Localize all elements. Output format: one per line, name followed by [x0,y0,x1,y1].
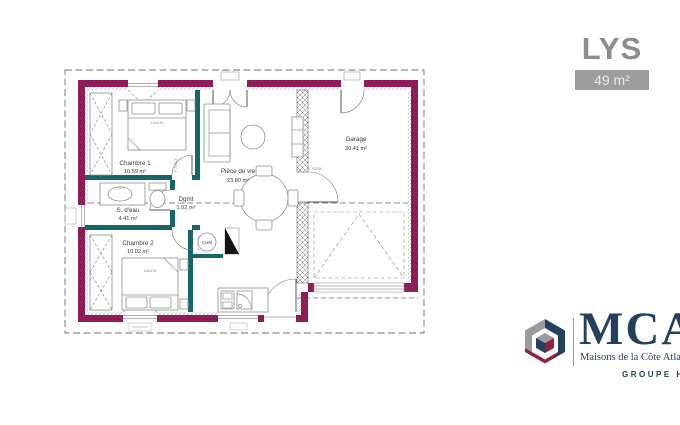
garage-access-door: P 75/204 [308,167,338,202]
label-chambre1-area: 10.59 m² [124,169,146,175]
garage-door-label: P 75/204 [308,167,322,171]
label-dgmt-area: 1.02 m² [177,205,196,211]
label-garage-area: 20.41 m² [345,146,367,152]
entry-door [213,72,247,107]
chambre1-door: P 70/204 [172,155,192,175]
kitchen-counter [218,288,268,312]
mca-cube-icon [521,315,569,367]
label-sdeau: S. d'eau [117,207,140,214]
logo-group: GROUPE HEXAOM [622,370,680,379]
model-title: LYS [575,33,649,65]
living-furniture [204,104,303,230]
chambre2-door: P 70/204 [172,230,201,250]
bathroom-window [65,205,85,227]
garage-door [314,212,404,292]
area-badge: 49 m² [575,70,649,90]
plan-header: LYS 49 m² [575,33,649,90]
label-piece-de-vie: Pièce de vie [221,168,256,175]
chambre1-door-label: P 70/204 [174,158,178,172]
page: { "header": { "title": "LYS", "area_badg… [0,0,680,425]
kitchen-window [218,316,258,331]
tech-closet: CUM [198,228,239,254]
builder-logo: MCA Maisons de la Côte Atlantique GROUPE… [516,310,680,400]
garage-side-door [341,72,364,113]
label-chambre1: Chambre 1 [119,160,151,167]
logo-divider [573,318,574,366]
label-chambre2: Chambre 2 [122,240,154,247]
label-garage: Garage [345,136,367,143]
floor-plan: P 75/204 P 70/204 P 70/204 [50,60,430,340]
label-sdeau-area: 4.41 m² [119,216,138,222]
logo-brand: MCA [579,302,680,356]
logo-tagline: Maisons de la Côte Atlantique [580,352,680,363]
water-heater-label: CUM [202,240,212,245]
bathroom-fixtures [100,183,166,208]
label-piece-de-vie-area: 23.80 m² [227,178,249,184]
label-chambre2-area: 10.02 m² [127,249,149,255]
label-dgmt: Dgmt [178,196,193,203]
chambre2-bed-size: 140x190 [143,269,156,273]
chambre1-bed-size: 140x190 [150,121,163,125]
